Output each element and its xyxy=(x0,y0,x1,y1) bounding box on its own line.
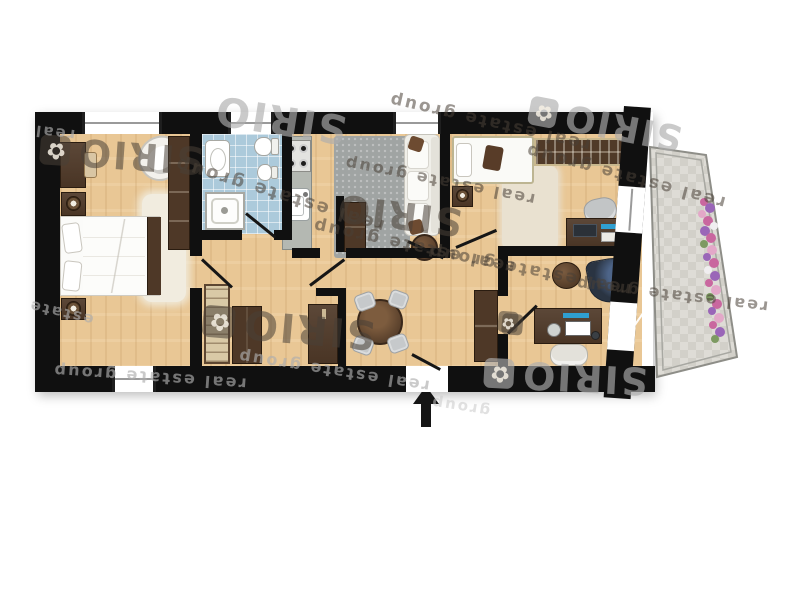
floor-plan-image: SIRIO✿SIRIOSIRIOSIRIO✿SIRIO✿SIRIO✿✿real … xyxy=(0,0,800,600)
pillow xyxy=(61,222,83,254)
wall-hall-office-lower xyxy=(498,334,508,366)
sofa-cushion xyxy=(407,171,429,201)
desk-paper xyxy=(565,321,591,336)
kitchen-fridge-cabinet xyxy=(344,202,366,252)
wall-dining-nook-v xyxy=(338,294,346,368)
bedroom2-lamp xyxy=(456,189,469,202)
office-desk xyxy=(534,308,602,344)
duvet xyxy=(83,219,145,293)
bathroom-basin xyxy=(205,140,230,177)
desk-cup xyxy=(591,331,600,340)
master-dresser xyxy=(60,142,86,188)
window-bathroom xyxy=(228,112,274,134)
bed-cushion xyxy=(482,145,504,172)
master-lamp-top xyxy=(66,196,81,211)
entrance-opening xyxy=(406,366,448,392)
sink-faucet xyxy=(303,192,308,197)
sofa-backrest xyxy=(431,137,439,233)
balcony xyxy=(640,134,744,390)
balcony-tiles xyxy=(650,147,737,377)
master-chair xyxy=(84,152,97,178)
entrance-arrow-icon xyxy=(412,386,440,428)
wall-master-lower xyxy=(190,288,202,366)
wall-master-bath xyxy=(190,134,202,256)
wall-kitchen-stub xyxy=(336,196,344,252)
wall-bathroom-bottom-right xyxy=(274,230,292,240)
shower xyxy=(205,192,245,230)
hall-shelf-wardrobe xyxy=(204,284,230,364)
shower-drain xyxy=(221,207,228,214)
hall-cabinet-a xyxy=(232,306,262,364)
bidet-tap xyxy=(271,166,278,179)
office-stool xyxy=(552,262,581,289)
bidet-bowl xyxy=(257,164,272,181)
burner xyxy=(299,144,308,153)
office-chair xyxy=(550,344,588,366)
sofa-pillow xyxy=(408,219,425,236)
pillow xyxy=(456,143,472,177)
burner xyxy=(299,159,308,168)
pillow xyxy=(61,260,82,292)
office-cabinet xyxy=(474,290,498,362)
basin-bowl xyxy=(210,148,226,171)
wall-left xyxy=(35,112,60,392)
master-wardrobe xyxy=(168,136,190,250)
desk-blue-strip xyxy=(563,313,589,318)
master-bed xyxy=(60,216,160,296)
sofa xyxy=(404,134,440,236)
window-master-bottom xyxy=(112,366,156,392)
bedroom2-wardrobe xyxy=(534,138,628,166)
wall-hall-kitchen xyxy=(292,248,320,258)
monitor xyxy=(573,224,597,237)
hall-cabinet-b xyxy=(308,304,338,364)
master-lamp-bottom xyxy=(66,301,81,316)
wall-bathroom-right xyxy=(282,134,292,238)
window-master-top xyxy=(82,112,162,134)
desk-lamp-base xyxy=(547,323,561,337)
toilet-tank xyxy=(271,138,279,155)
cabinet-handle xyxy=(322,309,326,319)
bed-footboard xyxy=(147,217,161,295)
wall-bathroom-bottom-left xyxy=(202,230,242,240)
wall-bedroom2-bottom xyxy=(498,246,640,256)
arrow-shaft xyxy=(421,403,431,427)
bedroom2-bed xyxy=(452,136,534,184)
toilet-bowl xyxy=(254,137,272,156)
wall-living-bedroom2 xyxy=(440,134,450,258)
right-wall-window xyxy=(615,186,645,234)
window-living xyxy=(393,112,441,134)
wall-hall-office-upper xyxy=(498,256,508,296)
bidet xyxy=(257,164,279,181)
toilet xyxy=(254,137,280,156)
